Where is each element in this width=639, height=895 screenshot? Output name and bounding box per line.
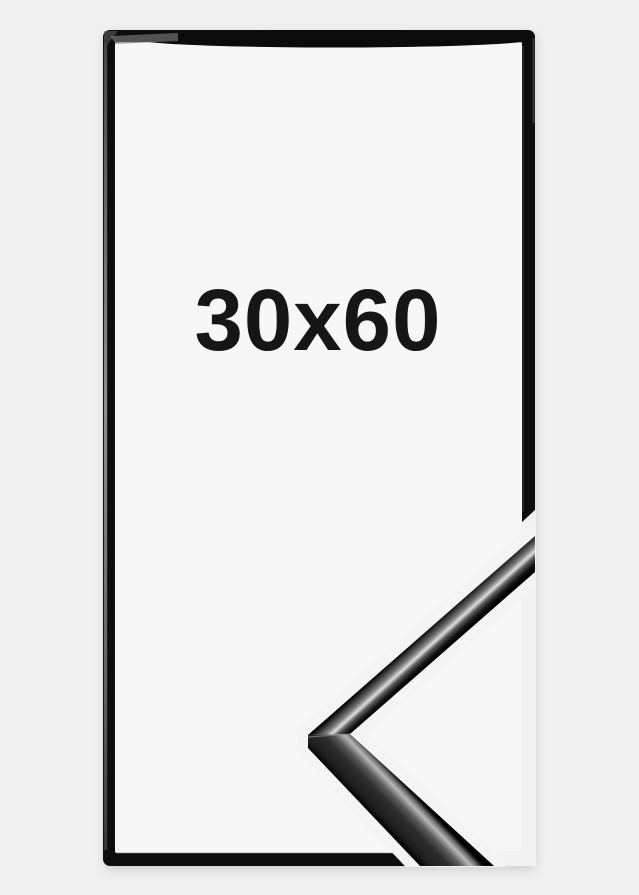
product-photo-frame-30x60: 30x60 — [0, 0, 639, 895]
top-right-gloss-stripe — [533, 38, 535, 123]
right-bar-inner-line — [522, 46, 523, 512]
product-photo-canvas: 30x60 — [0, 0, 639, 895]
top-bar-gloss-bulge — [135, 31, 535, 48]
left-bar-gloss-stripe — [104, 44, 107, 850]
size-label: 30x60 — [195, 272, 442, 369]
bottom-bar-inner-line — [117, 853, 393, 854]
